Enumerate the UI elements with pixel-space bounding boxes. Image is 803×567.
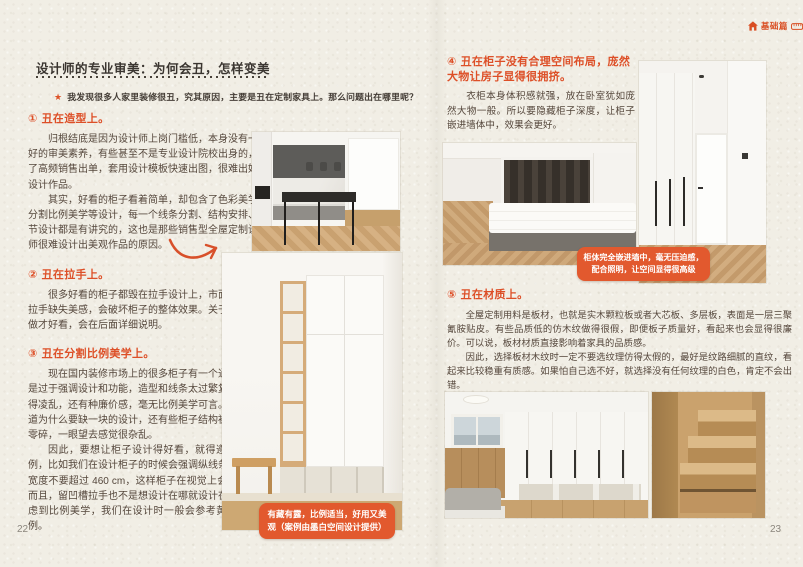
photo-detail [280,281,306,467]
intro-text: 我发现很多人家里装修很丑，究其原因，主要是丑在定制家具上。那么问题出在哪里呢？ [67,92,418,102]
photo-detail [688,436,756,463]
photo-detail [320,162,327,171]
photo-detail [652,392,678,518]
page-number-left: 22 [17,524,28,535]
paragraph: 归根结底是因为设计师上岗门槛低，本身没有一个好的审美素养，有些甚至不是专业设计院… [28,132,268,193]
photo-detail [284,202,286,245]
photo-caption-badge: 柜体完全嵌进墙中，毫无压迫感，配合照明，让空间显得很高级 [577,247,710,281]
section-number: ⑤ [447,289,457,301]
photo-caption-badge: 有藏有露，比例适当，好用又美观（案例由墨白空间设计提供） [259,503,395,539]
section-heading-text: 丑在造型上。 [42,113,110,125]
photo-detail [306,162,313,171]
photo-detail [252,132,272,230]
photo-detail [318,202,320,245]
intro-line: ★我发现很多人家里装修很丑，究其原因，主要是丑在定制家具上。那么问题出在哪里呢？ [54,90,418,103]
section-heading-text: 丑在柜子没有合理空间布局，庞然大物让房子显得很拥挤。 [447,56,630,83]
photo-detail [501,500,648,518]
photo-detail [680,463,756,489]
photo-detail [255,186,270,199]
right-text-column-top: ④丑在柜子没有合理空间布局，庞然大物让房子显得很拥挤。 衣柜本身体积感就强，放在… [447,55,635,148]
section-ugly-in-layout: ④丑在柜子没有合理空间布局，庞然大物让房子显得很拥挤。 衣柜本身体积感就强，放在… [447,55,635,134]
page-number-right: 23 [770,524,781,535]
photo-detail [445,488,501,510]
section-ugly-in-material: ⑤丑在材质上。 全屋定制用料是板材，也就是实木颗粒板或者大芯板、多层板，表面是一… [447,288,792,392]
section-heading: ⑤丑在材质上。 [447,288,792,303]
photo-detail [306,275,384,467]
section-number: ③ [28,348,38,360]
photo-detail [268,466,272,494]
photo-detail [463,395,489,404]
page-title: 设计师的专业审美：为何会丑，怎样变美 [36,58,270,77]
photo-detail [742,153,748,159]
photo-detail [451,414,503,448]
section-ugly-in-shape: ①丑在造型上。 归根结底是因为设计师上岗门槛低，本身没有一个好的审美素养，有些甚… [28,112,268,254]
house-icon [748,20,758,32]
paragraph: 全屋定制用料是板材，也就是实木颗粒板或者大芯板、多层板，表面是一层三聚氰胺贴皮。… [447,308,792,350]
photo-detail [698,187,703,189]
photo-detail [683,177,685,226]
chapter-badge: 基础篇 [748,20,803,32]
paragraph: 因此，选择板材木纹时一定不要选纹理仿得太假的，最好是纹路细腻的直纹，看起来比较稳… [447,350,792,392]
tall-cabinet-photo [222,253,402,530]
star-icon: ★ [54,92,62,102]
photo-detail [252,226,400,251]
section-number: ① [28,113,38,125]
paragraph: 衣柜本身体积感就强，放在卧室犹如庞然大物一般。所以要隐藏柜子深度，让柜子嵌进墙体… [447,90,635,134]
hand-drawn-arrow [166,232,224,266]
section-heading-text: 丑在分割比例美学上。 [42,348,155,360]
photo-detail [698,410,756,436]
photo-detail [655,181,657,226]
wardrobe-room-photo [445,392,648,518]
right-text-column-bottom: ⑤丑在材质上。 全屋定制用料是板材，也就是实木颗粒板或者大芯板、多层板，表面是一… [447,288,792,406]
section-number: ② [28,269,38,281]
photo-detail [352,202,354,245]
title-dotted-underline [36,76,266,78]
photo-detail [334,162,341,171]
paragraph: 其实，好看的柜子看着简单，却包含了色彩美学和分割比例美学等设计，每一个线条分割、… [28,193,268,254]
photo-detail [639,73,695,251]
page-gutter [428,0,446,567]
photo-detail [699,75,704,78]
kitchen-photo [252,132,400,251]
section-heading-text: 丑在拉手上。 [42,269,110,281]
photo-detail [236,466,240,494]
section-heading-text: 丑在材质上。 [461,289,529,301]
photo-detail [489,203,636,233]
section-heading: ④丑在柜子没有合理空间布局，庞然大物让房子显得很拥挤。 [447,55,635,85]
photo-detail [680,489,756,513]
chapter-badge-label: 基础篇 [761,20,788,32]
ruler-icon [791,22,803,31]
photo-detail [280,467,384,493]
book-spread: 基础篇 设计师的专业审美：为何会丑，怎样变美 ★我发现很多人家里装修很丑，究其原… [0,0,803,567]
photo-detail [526,450,626,478]
section-number: ④ [447,56,457,68]
photo-detail [695,133,728,245]
photo-detail [669,179,671,226]
photo-detail [382,253,402,493]
photo-detail [501,157,593,209]
wooden-stairs-photo [652,392,765,518]
photo-detail [282,192,356,202]
section-heading: ①丑在造型上。 [28,112,268,127]
